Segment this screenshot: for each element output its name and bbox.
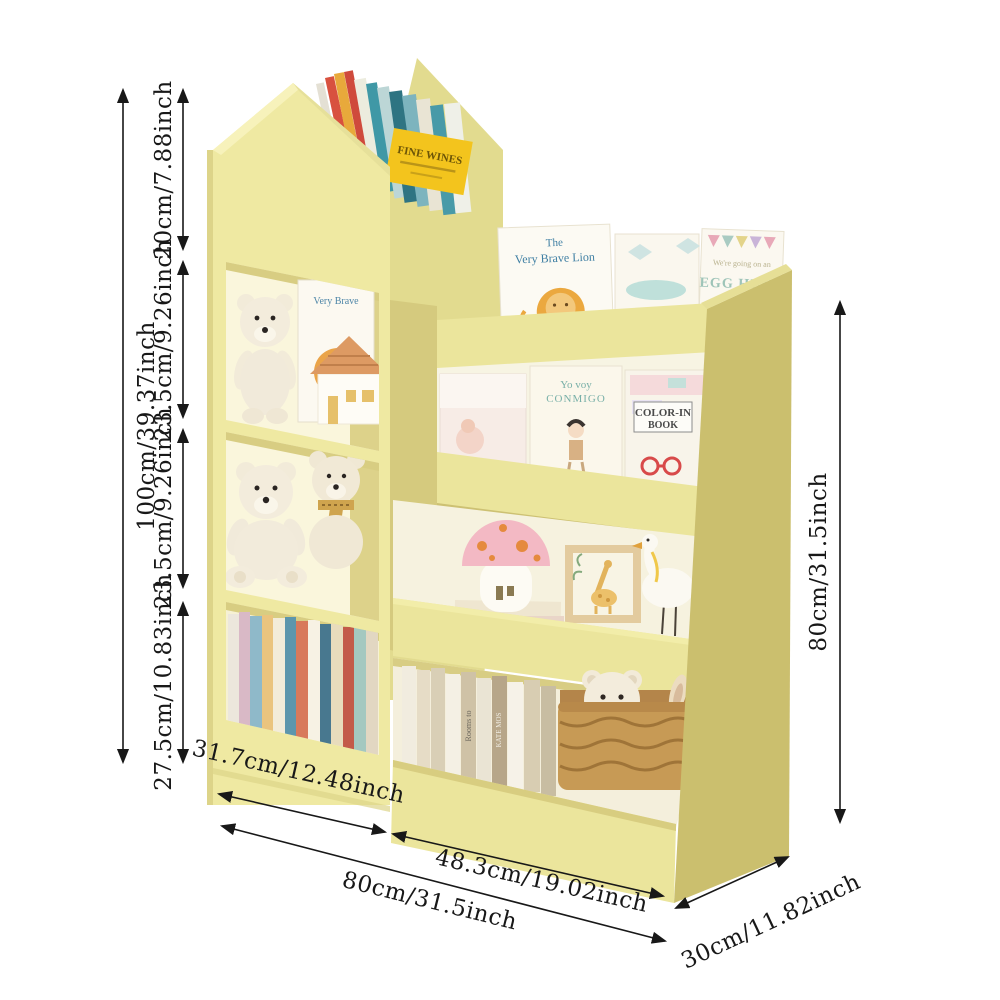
bookshelf-dimension-diagram: FINE WINES Very Brave: [0, 0, 1000, 1000]
dim-label-right-height: 80cm/31.5inch: [806, 472, 832, 651]
tower-left-edge: [207, 150, 213, 805]
spine-rooms: Rooms to: [464, 711, 473, 742]
spine-kate: KATE MOS: [495, 712, 503, 747]
color-in-2: BOOK: [648, 420, 678, 431]
product-dimension-image: FINE WINES Very Brave: [0, 0, 1000, 1000]
lion-title: Very Brave Lion: [515, 250, 595, 267]
yo-voy-2: CONMIGO: [546, 393, 606, 405]
dim-label-seg-top: 20cm/7.88inch: [151, 80, 177, 259]
picture-frame: [565, 545, 641, 623]
lion-the: The: [546, 237, 564, 250]
tower-shelf-1: Very Brave: [226, 262, 388, 451]
dim-label-seg-bottom: 27.5cm/10.83inch: [151, 573, 177, 790]
yo-voy-conmigo-book: Yo voy CONMIGO: [530, 366, 622, 482]
color-in-1: COLOR-IN: [635, 407, 691, 419]
tower-lion-title: Very Brave: [313, 296, 359, 307]
yo-voy-1: Yo voy: [560, 379, 592, 391]
color-in-book: COLOR-IN BOOK: [625, 370, 709, 496]
tower-shelf-2: [223, 432, 379, 621]
